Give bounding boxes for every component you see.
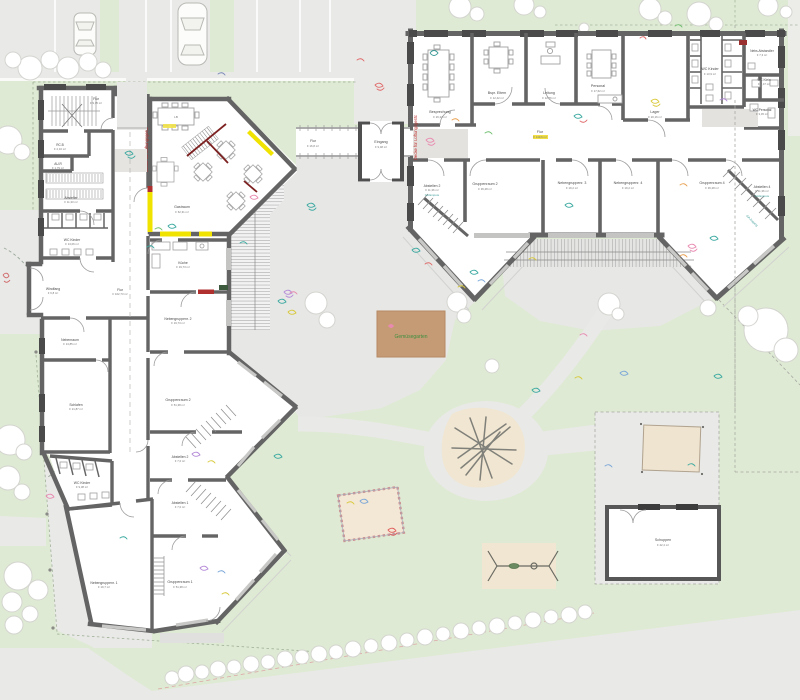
svg-text:Gruppenraum 4: Gruppenraum 4 xyxy=(699,181,724,185)
svg-text:F 19,7 m²: F 19,7 m² xyxy=(98,585,110,589)
svg-text:Eingang: Eingang xyxy=(374,140,387,144)
svg-text:F 102,73 m²: F 102,73 m² xyxy=(112,292,127,296)
svg-text:F 17,62 m²: F 17,62 m² xyxy=(591,89,605,93)
svg-text:F 12,42 m²: F 12,42 m² xyxy=(490,96,504,100)
svg-text:F 149,6 m²: F 149,6 m² xyxy=(533,135,547,139)
svg-text:F 11,33 m²: F 11,33 m² xyxy=(64,200,77,204)
svg-text:F 36,28 m²: F 36,28 m² xyxy=(478,187,492,191)
svg-text:Personal: Personal xyxy=(591,84,605,88)
svg-text:Besprechung: Besprechung xyxy=(429,110,450,114)
svg-text:Gemüsegarten: Gemüsegarten xyxy=(394,334,427,340)
svg-text:Gruppenraum 2: Gruppenraum 2 xyxy=(165,398,190,402)
svg-text:F 13,06 m²: F 13,06 m² xyxy=(65,242,79,246)
svg-text:F 20,16 m²: F 20,16 m² xyxy=(648,115,662,119)
svg-text:F 21,87 m²: F 21,87 m² xyxy=(69,407,83,411)
svg-text:F 51,38 m²: F 51,38 m² xyxy=(171,403,185,407)
svg-text:F 19,73 m²: F 19,73 m² xyxy=(171,321,185,325)
svg-text:F 42,4 m²: F 42,4 m² xyxy=(657,543,669,547)
svg-text:Bspr. Eltern: Bspr. Eltern xyxy=(488,91,507,95)
svg-text:F 11,36 m²: F 11,36 m² xyxy=(755,189,768,193)
svg-text:F 26,24 m²: F 26,24 m² xyxy=(433,115,447,119)
svg-text:Gruppenraum 2: Gruppenraum 2 xyxy=(472,182,497,186)
svg-text:Decke für Lüftungsgerät: Decke für Lüftungsgerät xyxy=(413,114,418,160)
svg-text:LB: LB xyxy=(174,115,178,119)
svg-text:F 7,3 m²: F 7,3 m² xyxy=(757,53,767,57)
svg-text:Gastraum: Gastraum xyxy=(174,205,190,209)
svg-text:F 1,79 m²: F 1,79 m² xyxy=(52,166,64,170)
svg-text:Lager: Lager xyxy=(650,110,660,114)
svg-text:Leitung: Leitung xyxy=(543,91,555,95)
svg-text:Gruppenraum 1: Gruppenraum 1 xyxy=(167,580,192,584)
svg-text:F 12,76 m²: F 12,76 m² xyxy=(542,96,556,100)
svg-text:F 9,48 m²: F 9,48 m² xyxy=(375,145,387,149)
svg-text:F 19,2 m²: F 19,2 m² xyxy=(566,186,578,190)
svg-text:F 51,38 m²: F 51,38 m² xyxy=(173,585,187,589)
svg-text:F 16,8 m²: F 16,8 m² xyxy=(307,144,319,148)
svg-text:F 13,85 m²: F 13,85 m² xyxy=(63,342,77,346)
svg-text:F 3,45 m²: F 3,45 m² xyxy=(756,112,768,116)
svg-text:Flur: Flur xyxy=(310,139,317,143)
svg-text:F 19,2 m²: F 19,2 m² xyxy=(622,186,634,190)
svg-text:WC Kinder: WC Kinder xyxy=(701,67,719,71)
svg-text:Flur: Flur xyxy=(537,130,544,134)
svg-text:F 11,36 m²: F 11,36 m² xyxy=(425,188,438,192)
svg-text:F 2,47 m²: F 2,47 m² xyxy=(758,82,770,86)
svg-text:F 36,28 m²: F 36,28 m² xyxy=(705,186,719,190)
svg-text:F 13,9 m²: F 13,9 m² xyxy=(704,72,716,76)
svg-text:F 2,16 m²: F 2,16 m² xyxy=(54,147,66,151)
svg-text:GA Empore: GA Empore xyxy=(755,194,770,198)
svg-text:GA Empore: GA Empore xyxy=(425,193,440,197)
svg-text:F 62,31 m²: F 62,31 m² xyxy=(175,210,189,214)
svg-text:F 19,73 m²: F 19,73 m² xyxy=(176,265,190,269)
svg-text:F 9,38 m²: F 9,38 m² xyxy=(76,485,88,489)
svg-text:F 9,35 m²: F 9,35 m² xyxy=(90,101,102,105)
svg-text:F 7,0 m²: F 7,0 m² xyxy=(175,459,185,463)
svg-text:Schuppen: Schuppen xyxy=(655,538,671,542)
svg-text:F 6,8 m²: F 6,8 m² xyxy=(48,291,58,295)
svg-text:Nebengruppenr. 3: Nebengruppenr. 3 xyxy=(558,181,587,185)
svg-text:F 7,0 m²: F 7,0 m² xyxy=(175,505,185,509)
svg-text:Nebengruppenr. 4: Nebengruppenr. 4 xyxy=(614,181,643,185)
